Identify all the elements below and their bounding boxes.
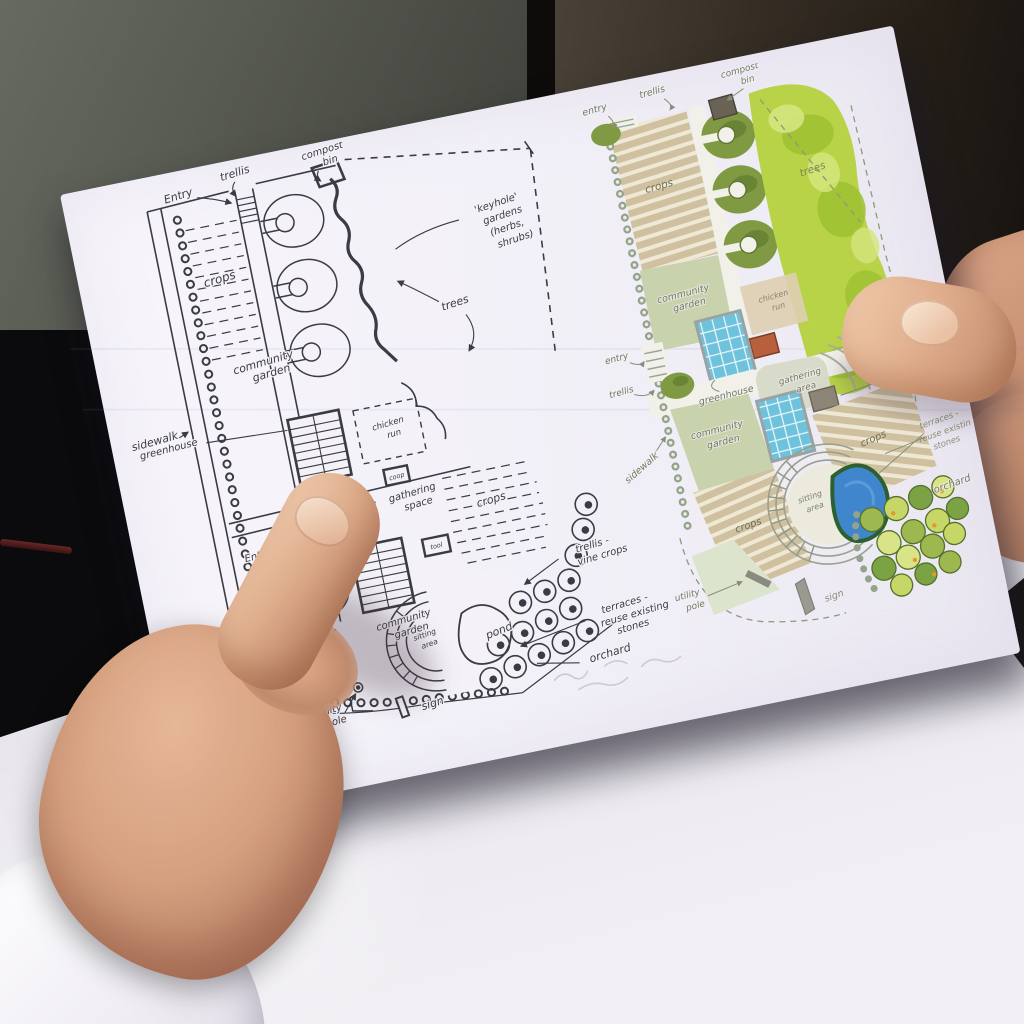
label-r-compost-2: bin <box>740 74 756 87</box>
label-trellis-top: trellis <box>218 162 251 184</box>
sign-post <box>795 577 816 615</box>
label-chicken-2: run <box>386 427 403 441</box>
label-r-entry-top: entry <box>581 101 609 118</box>
label-r-sign: sign <box>823 588 845 605</box>
coop-shed <box>749 333 779 359</box>
label-r-utility-2: pole <box>684 599 707 614</box>
crops-hatch-mid <box>442 460 552 565</box>
tree-line-wavy <box>329 166 447 451</box>
label-r-trellis-top: trellis <box>638 84 666 102</box>
label-r-entry-mid: entry <box>604 351 630 367</box>
label-r-trellis-mid: trellis <box>608 385 635 401</box>
label-r-sidewalk: sidewalk <box>623 450 662 486</box>
label-crops-mid: crops <box>475 489 508 510</box>
crops-hatch-top <box>186 220 263 360</box>
label-trees: trees <box>440 292 471 313</box>
label-crops-top: crops <box>202 268 237 291</box>
photo-scene: Entry trellis compost bin sidewalk crops… <box>0 0 1024 1024</box>
